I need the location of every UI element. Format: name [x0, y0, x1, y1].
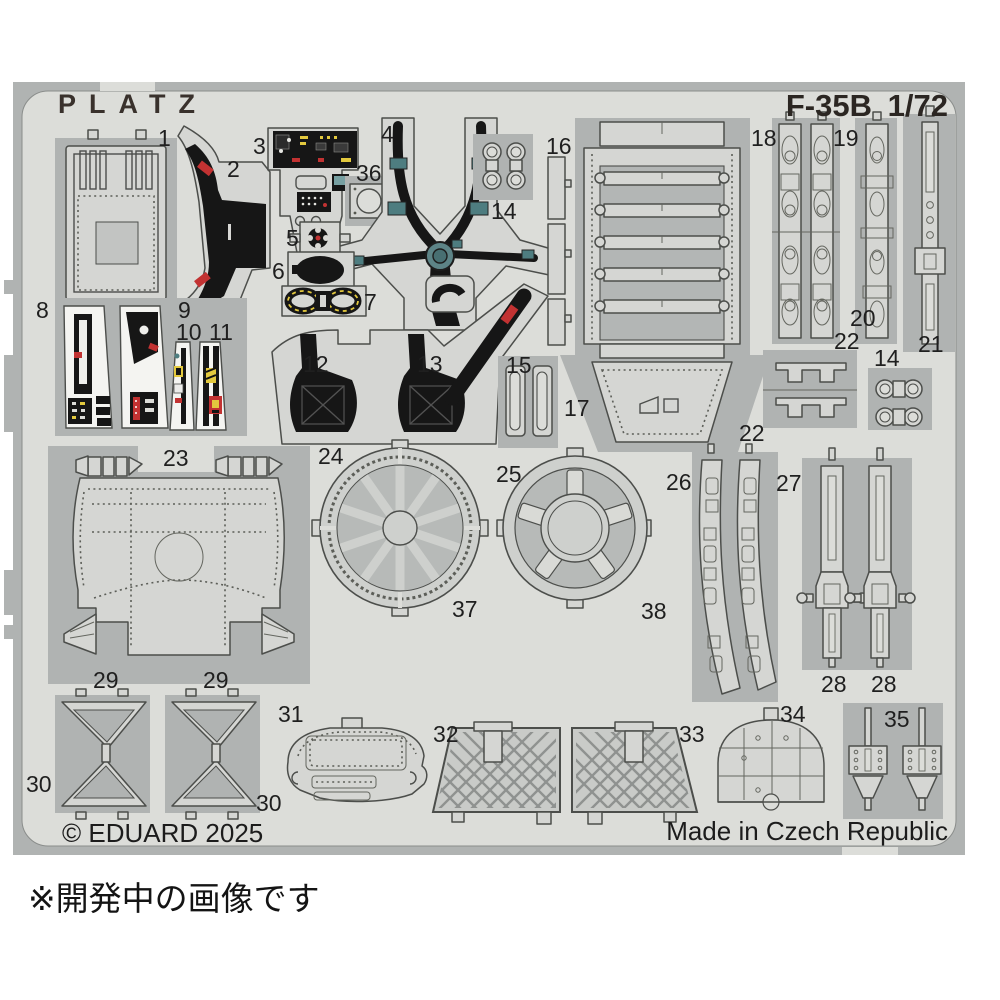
part-label: 37 [452, 596, 478, 622]
part-27-28-struts [797, 448, 915, 670]
part-23-panel [48, 446, 310, 684]
part-label: 2 [227, 156, 240, 182]
part-label: 26 [666, 469, 692, 495]
part-label: 7 [364, 289, 377, 315]
part-label: 14 [491, 198, 517, 224]
part-26-side-frames [692, 444, 778, 702]
part-17-bulkhead [592, 362, 732, 442]
frame-tab [4, 570, 14, 615]
part-label: 21 [918, 331, 944, 357]
part-7-belt-loops [282, 286, 366, 316]
part-label: 38 [641, 598, 667, 624]
part-label: 34 [780, 701, 806, 727]
part-label: 30 [26, 771, 52, 797]
part-label: 28 [871, 671, 897, 697]
model-text: F-35B [786, 88, 872, 123]
part-label: 8 [36, 297, 49, 323]
part-21-long-strut [903, 106, 955, 352]
part-label: 33 [679, 721, 705, 747]
part-label: 25 [496, 461, 522, 487]
part-label: 36 [356, 160, 382, 186]
part-label: 32 [433, 721, 459, 747]
frame-notch [842, 847, 898, 855]
part-label: 14 [874, 345, 900, 371]
part-label: 22 [834, 328, 860, 354]
frame-tab [4, 625, 14, 639]
product-photo: 1 2 3 36 4 5 6 7 14 16 18 19 8 9 10 11 1… [0, 0, 1000, 1000]
part-label: 24 [318, 443, 344, 469]
part-label: 4 [381, 121, 394, 147]
dev-note-caption: ※開発中の画像です [28, 879, 320, 918]
part-14-buckles-right [868, 368, 932, 430]
part-label: 23 [163, 445, 189, 471]
part-label: 13 [417, 351, 443, 377]
copyright-text: © EDUARD 2025 [62, 818, 263, 848]
part-label: 11 [209, 319, 233, 345]
part-label: 29 [203, 667, 229, 693]
scale-text: 1/72 [888, 88, 948, 123]
part-label: 5 [286, 225, 299, 251]
part-6-headrest [288, 252, 354, 290]
part-label: 19 [833, 125, 859, 151]
part-label: 30 [256, 790, 282, 816]
frame-tab [4, 355, 14, 432]
part-label: 6 [272, 258, 285, 284]
part-label: 35 [884, 706, 910, 732]
part-label: 15 [506, 352, 532, 378]
part-label: 10 [176, 319, 202, 345]
frame-block-right [165, 689, 260, 819]
part-16-strip [548, 157, 571, 345]
part-label: 31 [278, 701, 304, 727]
frame-block-left [55, 689, 150, 819]
part-label: 17 [564, 395, 590, 421]
brand-text: PLATZ [58, 89, 208, 119]
part-label: 1 [158, 125, 171, 151]
frame-tab [4, 280, 14, 294]
part-label: 22 [739, 420, 765, 446]
photo-etch-sheet: 1 2 3 36 4 5 6 7 14 16 18 19 8 9 10 11 1… [0, 0, 1000, 1000]
part-label: 3 [253, 133, 266, 159]
part-14-buckles-top [473, 134, 533, 200]
origin-text: Made in Czech Republic [666, 816, 948, 846]
part-22-brackets [763, 350, 857, 428]
part-label: 12 [303, 351, 329, 377]
part-label: 29 [93, 667, 119, 693]
part-label: 28 [821, 671, 847, 697]
part-1-cockpit-tub [55, 130, 177, 308]
part-label: 16 [546, 133, 572, 159]
part-label: 18 [751, 125, 777, 151]
part-label: 27 [776, 470, 802, 496]
part-18-gear-struts [772, 112, 840, 344]
